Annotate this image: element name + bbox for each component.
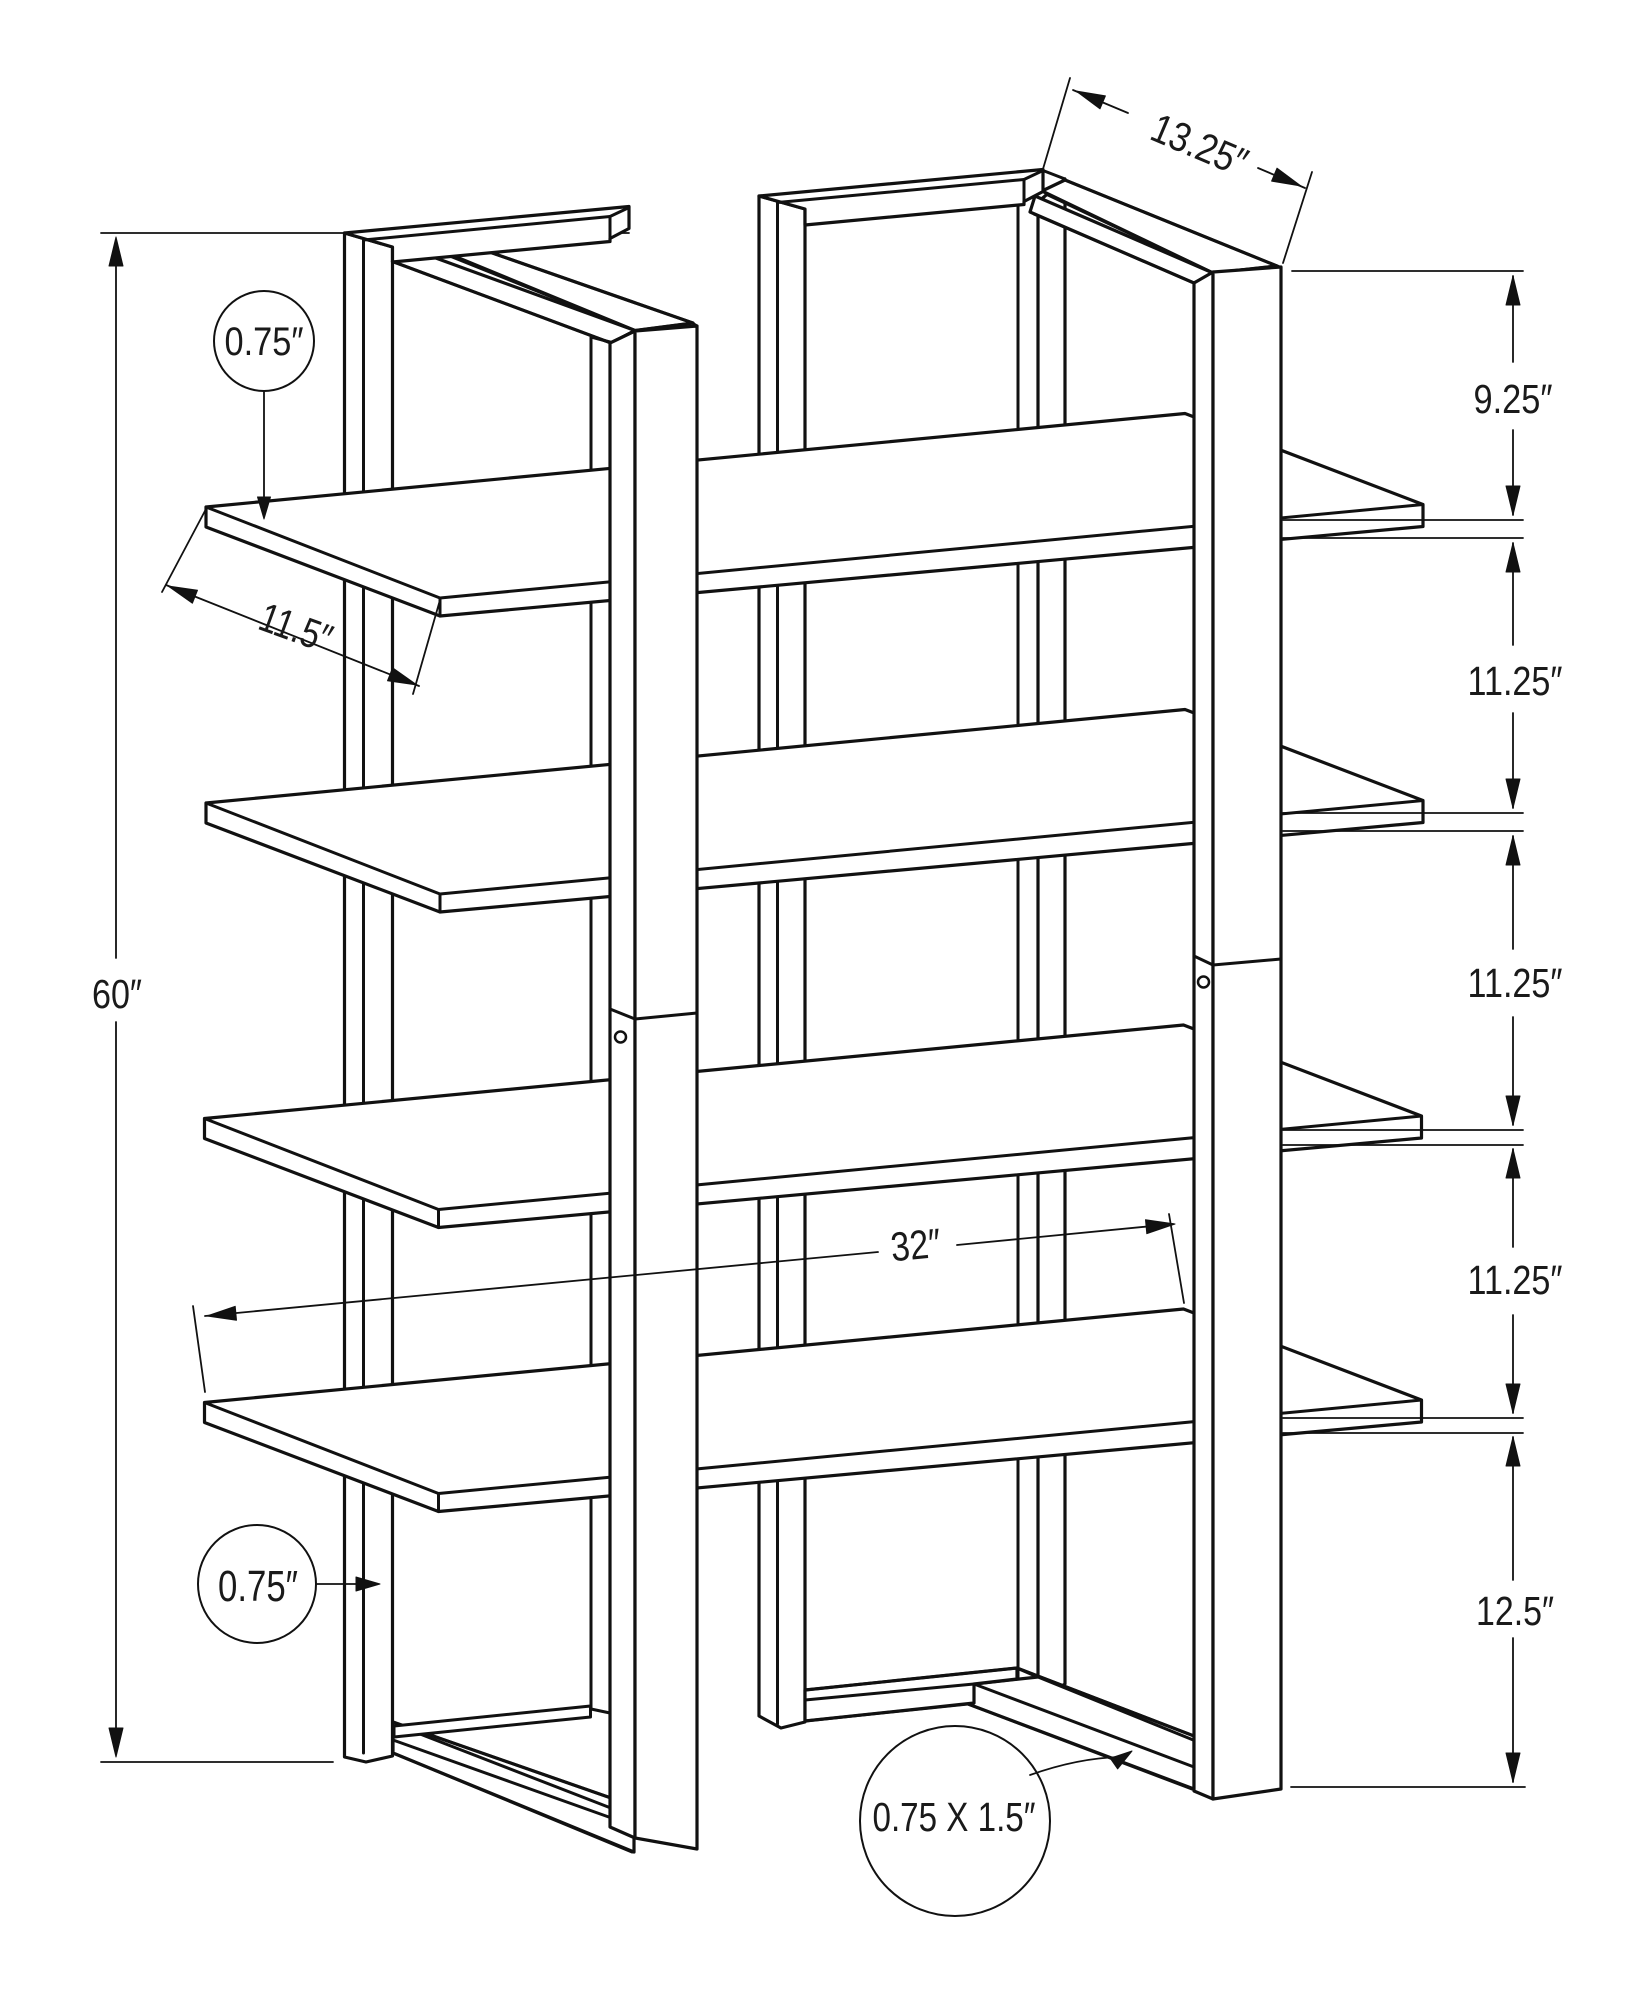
svg-text:11.5″: 11.5″ bbox=[253, 594, 338, 663]
svg-text:9.25″: 9.25″ bbox=[1474, 376, 1553, 422]
svg-text:32″: 32″ bbox=[889, 1220, 943, 1271]
svg-text:11.25″: 11.25″ bbox=[1468, 1257, 1563, 1303]
svg-text:0.75″: 0.75″ bbox=[225, 320, 304, 364]
svg-text:0.75″: 0.75″ bbox=[218, 1562, 298, 1611]
svg-text:60″: 60″ bbox=[92, 971, 142, 1017]
svg-text:12.5″: 12.5″ bbox=[1476, 1588, 1554, 1634]
svg-text:13.25″: 13.25″ bbox=[1144, 104, 1254, 185]
svg-text:11.25″: 11.25″ bbox=[1468, 658, 1563, 704]
svg-text:0.75 X 1.5″: 0.75 X 1.5″ bbox=[873, 1794, 1036, 1840]
svg-text:11.25″: 11.25″ bbox=[1468, 960, 1563, 1006]
